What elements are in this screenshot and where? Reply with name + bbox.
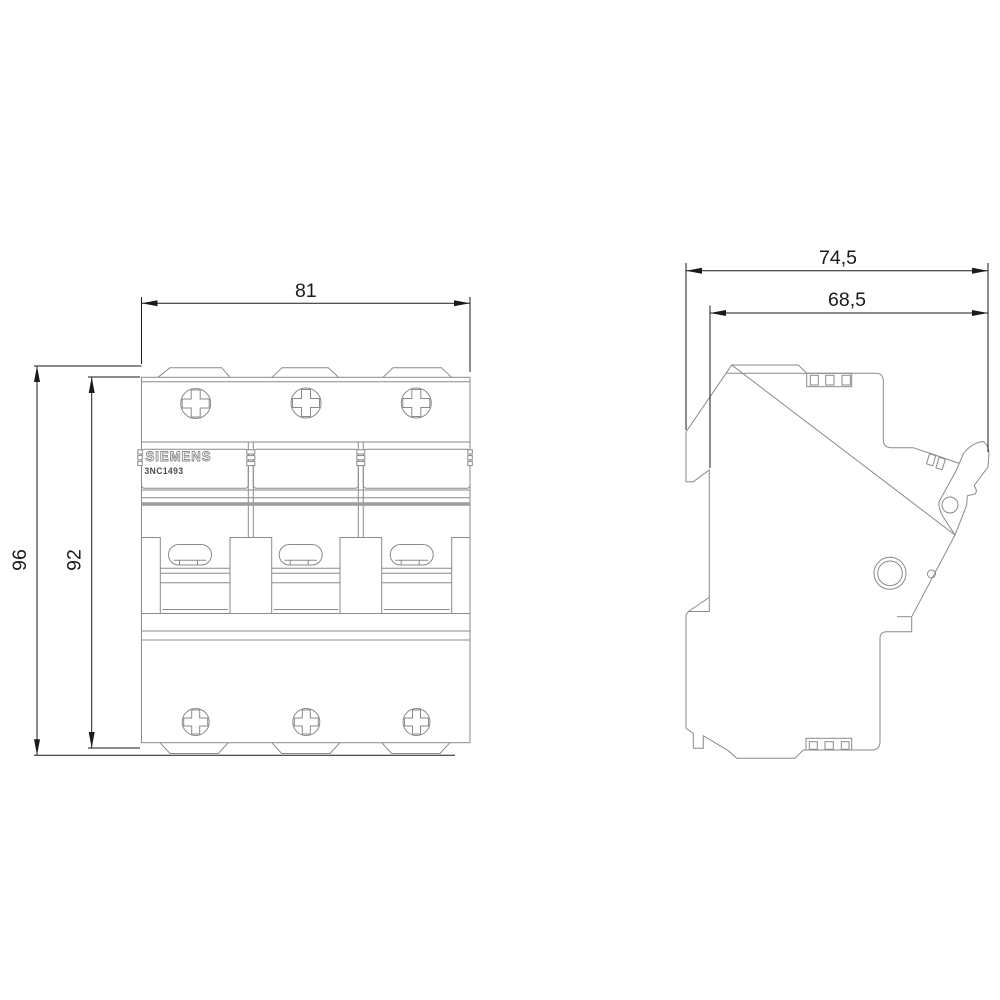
- phillips-screw-icon: [291, 388, 321, 418]
- phillips-screw-icon: [401, 388, 431, 418]
- fuse-panel-2: [253, 449, 358, 488]
- brand-label: SIEMENS: [146, 449, 212, 464]
- din-clip-notch: [689, 598, 710, 612]
- terminal-section: [142, 538, 471, 614]
- panel-band: [142, 502, 471, 506]
- slope-tabs: [926, 454, 945, 470]
- side-body-outline: [686, 365, 960, 758]
- bottom-screws: [182, 709, 430, 736]
- dim-label-depth-overall: 74,5: [819, 247, 857, 269]
- side-view: [686, 365, 989, 758]
- drawing-canvas: SIEMENS 3NC1493: [0, 0, 1000, 1000]
- dim-label-width: 81: [295, 280, 317, 302]
- phillips-screw-icon: [181, 389, 211, 419]
- oval-slot: [390, 545, 433, 566]
- front-view: SIEMENS 3NC1493: [138, 368, 473, 754]
- oval-slot: [279, 545, 322, 566]
- dim-depth-68-5: 68,5: [710, 289, 988, 468]
- dim-height-92: 92: [64, 377, 141, 748]
- phillips-screw-icon: [182, 709, 209, 736]
- fuse-panel-3: [363, 449, 470, 488]
- top-vents: [807, 373, 852, 386]
- model-label: 3NC1493: [145, 466, 184, 476]
- dim-depth-74-5: 74,5: [686, 247, 988, 452]
- dim-label-depth-body: 68,5: [828, 289, 866, 311]
- top-screws: [181, 388, 432, 419]
- lever-hole: [942, 497, 958, 513]
- dim-label-height-body: 92: [64, 549, 86, 571]
- dim-width-81: 81: [142, 280, 471, 372]
- fuse-panels: SIEMENS 3NC1493: [138, 442, 473, 538]
- oval-slot: [169, 545, 212, 566]
- release-lever: [939, 442, 989, 536]
- side-knob: [874, 557, 906, 589]
- terminal-cell-lines: [160, 568, 451, 609]
- bottom-vents: [806, 738, 852, 750]
- phillips-screw-icon: [403, 709, 430, 736]
- front-bottom-feet: [160, 743, 450, 754]
- phillips-screw-icon: [293, 709, 320, 736]
- dim-label-height-overall: 96: [9, 549, 31, 571]
- front-top-bumps: [158, 368, 452, 378]
- dimension-drawing: SIEMENS 3NC1493: [0, 0, 1000, 1000]
